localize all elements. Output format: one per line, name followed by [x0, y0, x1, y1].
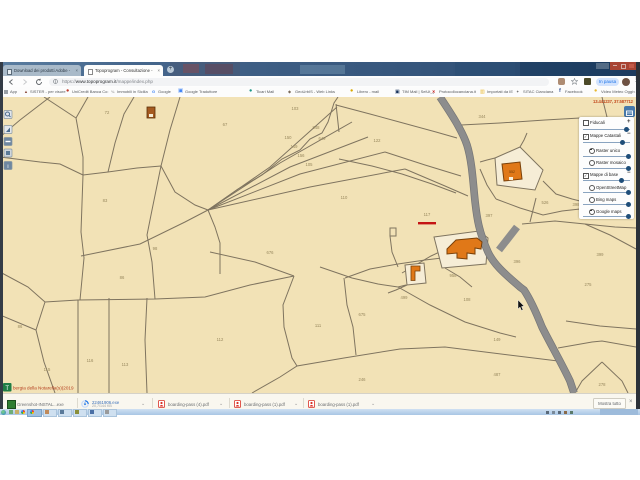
- svg-text:bergia della Notarella(s)(2019: bergia della Notarella(s)(2019: [13, 386, 74, 391]
- svg-text:113: 113: [122, 362, 129, 367]
- svg-text:98: 98: [153, 246, 158, 251]
- svg-text:105: 105: [306, 162, 314, 167]
- svg-text:150: 150: [285, 135, 293, 140]
- svg-text:397: 397: [486, 213, 494, 218]
- svg-text:487: 487: [494, 372, 502, 377]
- svg-text:103: 103: [292, 106, 300, 111]
- svg-text:149: 149: [291, 144, 299, 149]
- svg-text:122: 122: [374, 138, 382, 143]
- svg-text:110: 110: [341, 195, 348, 200]
- svg-text:396: 396: [514, 259, 522, 264]
- svg-text:552: 552: [509, 170, 515, 174]
- svg-text:278: 278: [599, 382, 607, 387]
- svg-text:149: 149: [494, 337, 502, 342]
- svg-text:649: 649: [319, 136, 327, 141]
- svg-text:676: 676: [267, 250, 275, 255]
- svg-text:116: 116: [87, 358, 94, 363]
- svg-text:499: 499: [401, 295, 409, 300]
- svg-text:i: i: [7, 164, 8, 170]
- svg-text:111: 111: [315, 323, 322, 328]
- svg-text:526: 526: [542, 200, 550, 205]
- svg-text:67: 67: [223, 122, 228, 127]
- svg-text:86: 86: [18, 324, 23, 329]
- svg-text:117: 117: [424, 212, 431, 217]
- svg-text:958: 958: [450, 273, 458, 278]
- svg-text:344: 344: [479, 114, 487, 119]
- svg-text:86: 86: [120, 275, 125, 280]
- svg-text:83: 83: [103, 198, 108, 203]
- svg-text:275: 275: [585, 282, 593, 287]
- svg-text:246: 246: [359, 377, 367, 382]
- svg-text:108: 108: [464, 297, 472, 302]
- svg-text:156: 156: [298, 153, 306, 158]
- svg-text:72: 72: [105, 110, 110, 115]
- svg-text:T: T: [5, 386, 9, 392]
- svg-text:675: 675: [359, 312, 367, 317]
- svg-text:112: 112: [217, 337, 224, 342]
- svg-text:399: 399: [597, 252, 605, 257]
- svg-text:848: 848: [313, 125, 321, 130]
- svg-text:115: 115: [44, 367, 51, 372]
